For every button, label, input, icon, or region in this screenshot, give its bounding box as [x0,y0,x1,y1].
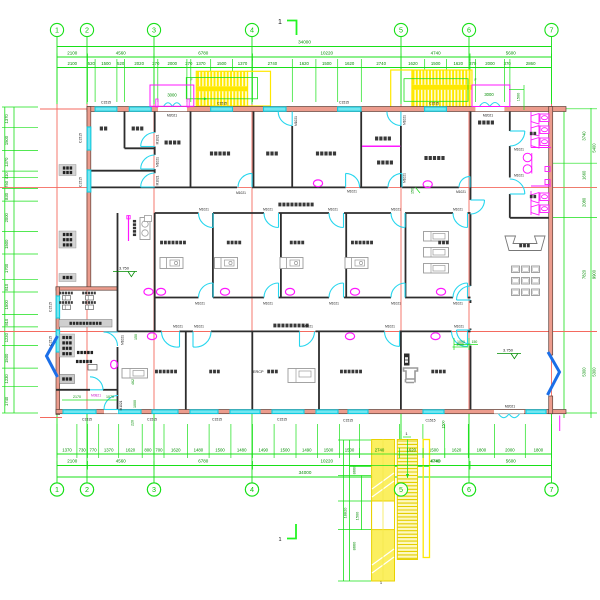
svg-text:6: 6 [467,26,471,35]
svg-text:M1021: M1021 [514,174,524,178]
svg-text:1620: 1620 [407,448,417,453]
svg-text:750: 750 [4,180,9,188]
svg-text:5600: 5600 [506,459,517,464]
svg-text:7: 7 [550,26,554,35]
svg-text:3000: 3000 [167,93,177,98]
svg-text:220: 220 [131,420,135,426]
svg-text:2020: 2020 [134,61,144,66]
svg-text:M1021: M1021 [391,302,401,306]
svg-text:5300: 5300 [582,367,587,377]
svg-text:C1515: C1515 [339,101,349,105]
svg-text:1500: 1500 [324,448,334,453]
svg-text:1660: 1660 [582,170,587,180]
svg-text:3.750: 3.750 [119,266,130,271]
svg-text:1000: 1000 [133,400,137,408]
svg-text:F: F [474,78,476,82]
svg-text:2740: 2740 [268,61,278,66]
svg-text:2000: 2000 [4,213,9,223]
svg-text:3: 3 [152,26,156,35]
svg-text:1480: 1480 [194,448,204,453]
svg-text:M2021: M2021 [483,114,493,118]
svg-text:5: 5 [399,485,403,494]
svg-text:1620: 1620 [454,61,464,66]
svg-text:1370: 1370 [104,448,114,453]
svg-text:1370: 1370 [62,448,72,453]
svg-text:34000: 34000 [299,470,312,475]
svg-text:M1021: M1021 [456,190,466,194]
svg-text:1500: 1500 [517,93,521,101]
svg-text:2: 2 [85,485,89,494]
svg-text:800: 800 [144,448,152,453]
svg-text:1500: 1500 [280,448,290,453]
svg-text:M1021: M1021 [453,302,463,306]
svg-text:270: 270 [152,61,160,66]
svg-text:1740: 1740 [4,396,9,406]
svg-text:7820: 7820 [582,269,587,279]
svg-text:1800: 1800 [534,448,544,453]
svg-text:2860: 2860 [526,61,536,66]
svg-text:520: 520 [88,61,96,66]
svg-text:7: 7 [550,485,554,494]
svg-text:1: 1 [278,537,281,543]
svg-text:C1515: C1515 [429,102,439,106]
svg-text:270: 270 [185,61,193,66]
svg-text:M1021: M1021 [199,208,209,212]
svg-text:5300: 5300 [592,367,597,377]
svg-text:1000: 1000 [456,343,464,347]
svg-text:5400: 5400 [592,143,597,153]
svg-text:9900: 9900 [592,269,597,279]
svg-text:1: 1 [55,485,59,494]
svg-text:C1515: C1515 [343,419,353,423]
svg-text:2100: 2100 [67,459,78,464]
svg-text:2080: 2080 [582,197,587,207]
svg-text:4740: 4740 [431,51,442,56]
svg-text:462: 462 [131,379,135,385]
svg-text:C1515: C1515 [49,336,53,346]
svg-text:C1515: C1515 [82,418,92,422]
svg-text:6: 6 [467,485,471,494]
svg-text:2000: 2000 [505,448,515,453]
svg-text:1370: 1370 [4,114,9,124]
svg-text:5600: 5600 [506,51,517,56]
svg-text:M1021: M1021 [236,191,246,195]
svg-text:M2021: M2021 [505,405,515,409]
svg-text:3000: 3000 [484,92,494,97]
svg-text:3740: 3740 [582,131,587,141]
svg-text:M1021: M1021 [402,115,406,125]
svg-text:6780: 6780 [198,459,209,464]
svg-text:M1021: M1021 [263,302,273,306]
svg-text:2170: 2170 [73,395,81,399]
svg-text:1800: 1800 [477,448,487,453]
svg-text:C1515: C1515 [49,302,53,312]
svg-text:M0821: M0821 [91,394,101,398]
svg-text:M1021: M1021 [391,208,401,212]
svg-text:1620: 1620 [126,448,136,453]
svg-text:M1021: M1021 [329,302,339,306]
svg-text:C1515: C1515 [101,101,111,105]
svg-text:M1021: M1021 [514,148,524,152]
svg-text:C1515: C1515 [79,133,83,143]
svg-text:1: 1 [278,19,282,26]
svg-text:1500: 1500 [431,61,441,66]
svg-text:2000: 2000 [168,61,178,66]
svg-text:1500: 1500 [215,448,225,453]
svg-text:2000: 2000 [485,61,495,66]
svg-text:1500: 1500 [355,511,360,520]
svg-text:1490: 1490 [302,448,312,453]
svg-text:M1021: M1021 [173,325,183,329]
svg-text:C1515: C1515 [277,418,287,422]
svg-text:M1021: M1021 [347,190,357,194]
svg-text:10220: 10220 [321,51,334,56]
svg-text:C1515: C1515 [212,418,222,422]
svg-text:ERCP: ERCP [253,370,264,374]
svg-text:1500: 1500 [322,61,332,66]
svg-text:C1515: C1515 [426,419,436,423]
svg-text:M1021: M1021 [294,116,298,126]
svg-text:2100: 2100 [68,61,78,66]
svg-text:M2021: M2021 [167,114,177,118]
svg-text:1500: 1500 [442,421,446,429]
svg-text:1700: 1700 [4,263,9,273]
svg-text:520: 520 [117,61,125,66]
svg-text:4560: 4560 [116,459,127,464]
svg-text:1620: 1620 [299,61,309,66]
svg-text:10220: 10220 [321,459,334,464]
svg-text:1070: 1070 [106,395,114,399]
svg-text:3: 3 [152,485,156,494]
svg-text:4740: 4740 [430,459,441,464]
svg-text:M1021: M1021 [453,208,463,212]
svg-text:1370: 1370 [4,157,9,167]
svg-text:1620: 1620 [171,448,181,453]
svg-text:770: 770 [90,448,98,453]
svg-text:2740: 2740 [375,448,385,453]
svg-text:730: 730 [79,448,87,453]
svg-text:1500: 1500 [429,448,439,453]
svg-text:150: 150 [472,340,478,344]
svg-text:M1021: M1021 [403,173,407,183]
svg-text:1370: 1370 [196,61,206,66]
svg-text:2: 2 [85,26,89,35]
svg-text:2740: 2740 [376,61,386,66]
svg-text:M1021: M1021 [303,325,313,329]
svg-text:5: 5 [399,26,403,35]
svg-text:3.750: 3.750 [503,348,514,353]
svg-text:F: F [190,78,192,82]
svg-text:M1021: M1021 [385,325,395,329]
svg-text:410: 410 [4,172,9,180]
svg-text:2100: 2100 [67,51,78,56]
svg-text:34000: 34000 [298,40,311,45]
svg-text:18820: 18820 [343,507,348,519]
svg-text:1480: 1480 [237,448,247,453]
svg-text:4: 4 [250,485,254,494]
svg-text:M1021: M1021 [195,302,205,306]
svg-text:810: 810 [4,318,9,326]
svg-text:810: 810 [4,283,9,291]
svg-text:M1021: M1021 [263,208,273,212]
svg-text:M1021: M1021 [121,335,125,345]
svg-text:C1515: C1515 [147,418,157,422]
svg-text:1490: 1490 [259,448,269,453]
svg-text:1: 1 [55,26,59,35]
svg-text:830: 830 [4,192,9,200]
svg-text:6780: 6780 [198,51,209,56]
svg-text:1620: 1620 [345,61,355,66]
svg-text:1230: 1230 [4,332,9,342]
svg-text:4: 4 [250,26,254,35]
svg-text:8660: 8660 [352,541,357,550]
svg-text:1500: 1500 [4,300,9,310]
svg-text:M1021: M1021 [328,208,338,212]
svg-text:1500: 1500 [4,353,9,363]
svg-text:150: 150 [411,188,415,194]
svg-text:M1021: M1021 [454,325,464,329]
svg-text:M1021: M1021 [156,157,160,167]
svg-text:M1021: M1021 [156,134,160,144]
svg-text:1230: 1230 [4,374,9,384]
svg-text:M1021: M1021 [194,325,204,329]
svg-text:1500: 1500 [4,239,9,249]
svg-text:M1021: M1021 [156,175,160,185]
svg-text:1500: 1500 [217,61,227,66]
svg-text:C1515: C1515 [217,102,227,106]
svg-text:1500: 1500 [101,61,111,66]
svg-text:M1021: M1021 [119,400,123,410]
svg-text:150: 150 [134,334,138,340]
svg-text:4560: 4560 [116,51,127,56]
svg-text:1620: 1620 [408,61,418,66]
svg-text:1500: 1500 [4,135,9,145]
svg-text:C1515: C1515 [79,177,83,187]
svg-text:1620: 1620 [452,448,462,453]
svg-text:1370: 1370 [238,61,248,66]
svg-text:700: 700 [155,448,163,453]
